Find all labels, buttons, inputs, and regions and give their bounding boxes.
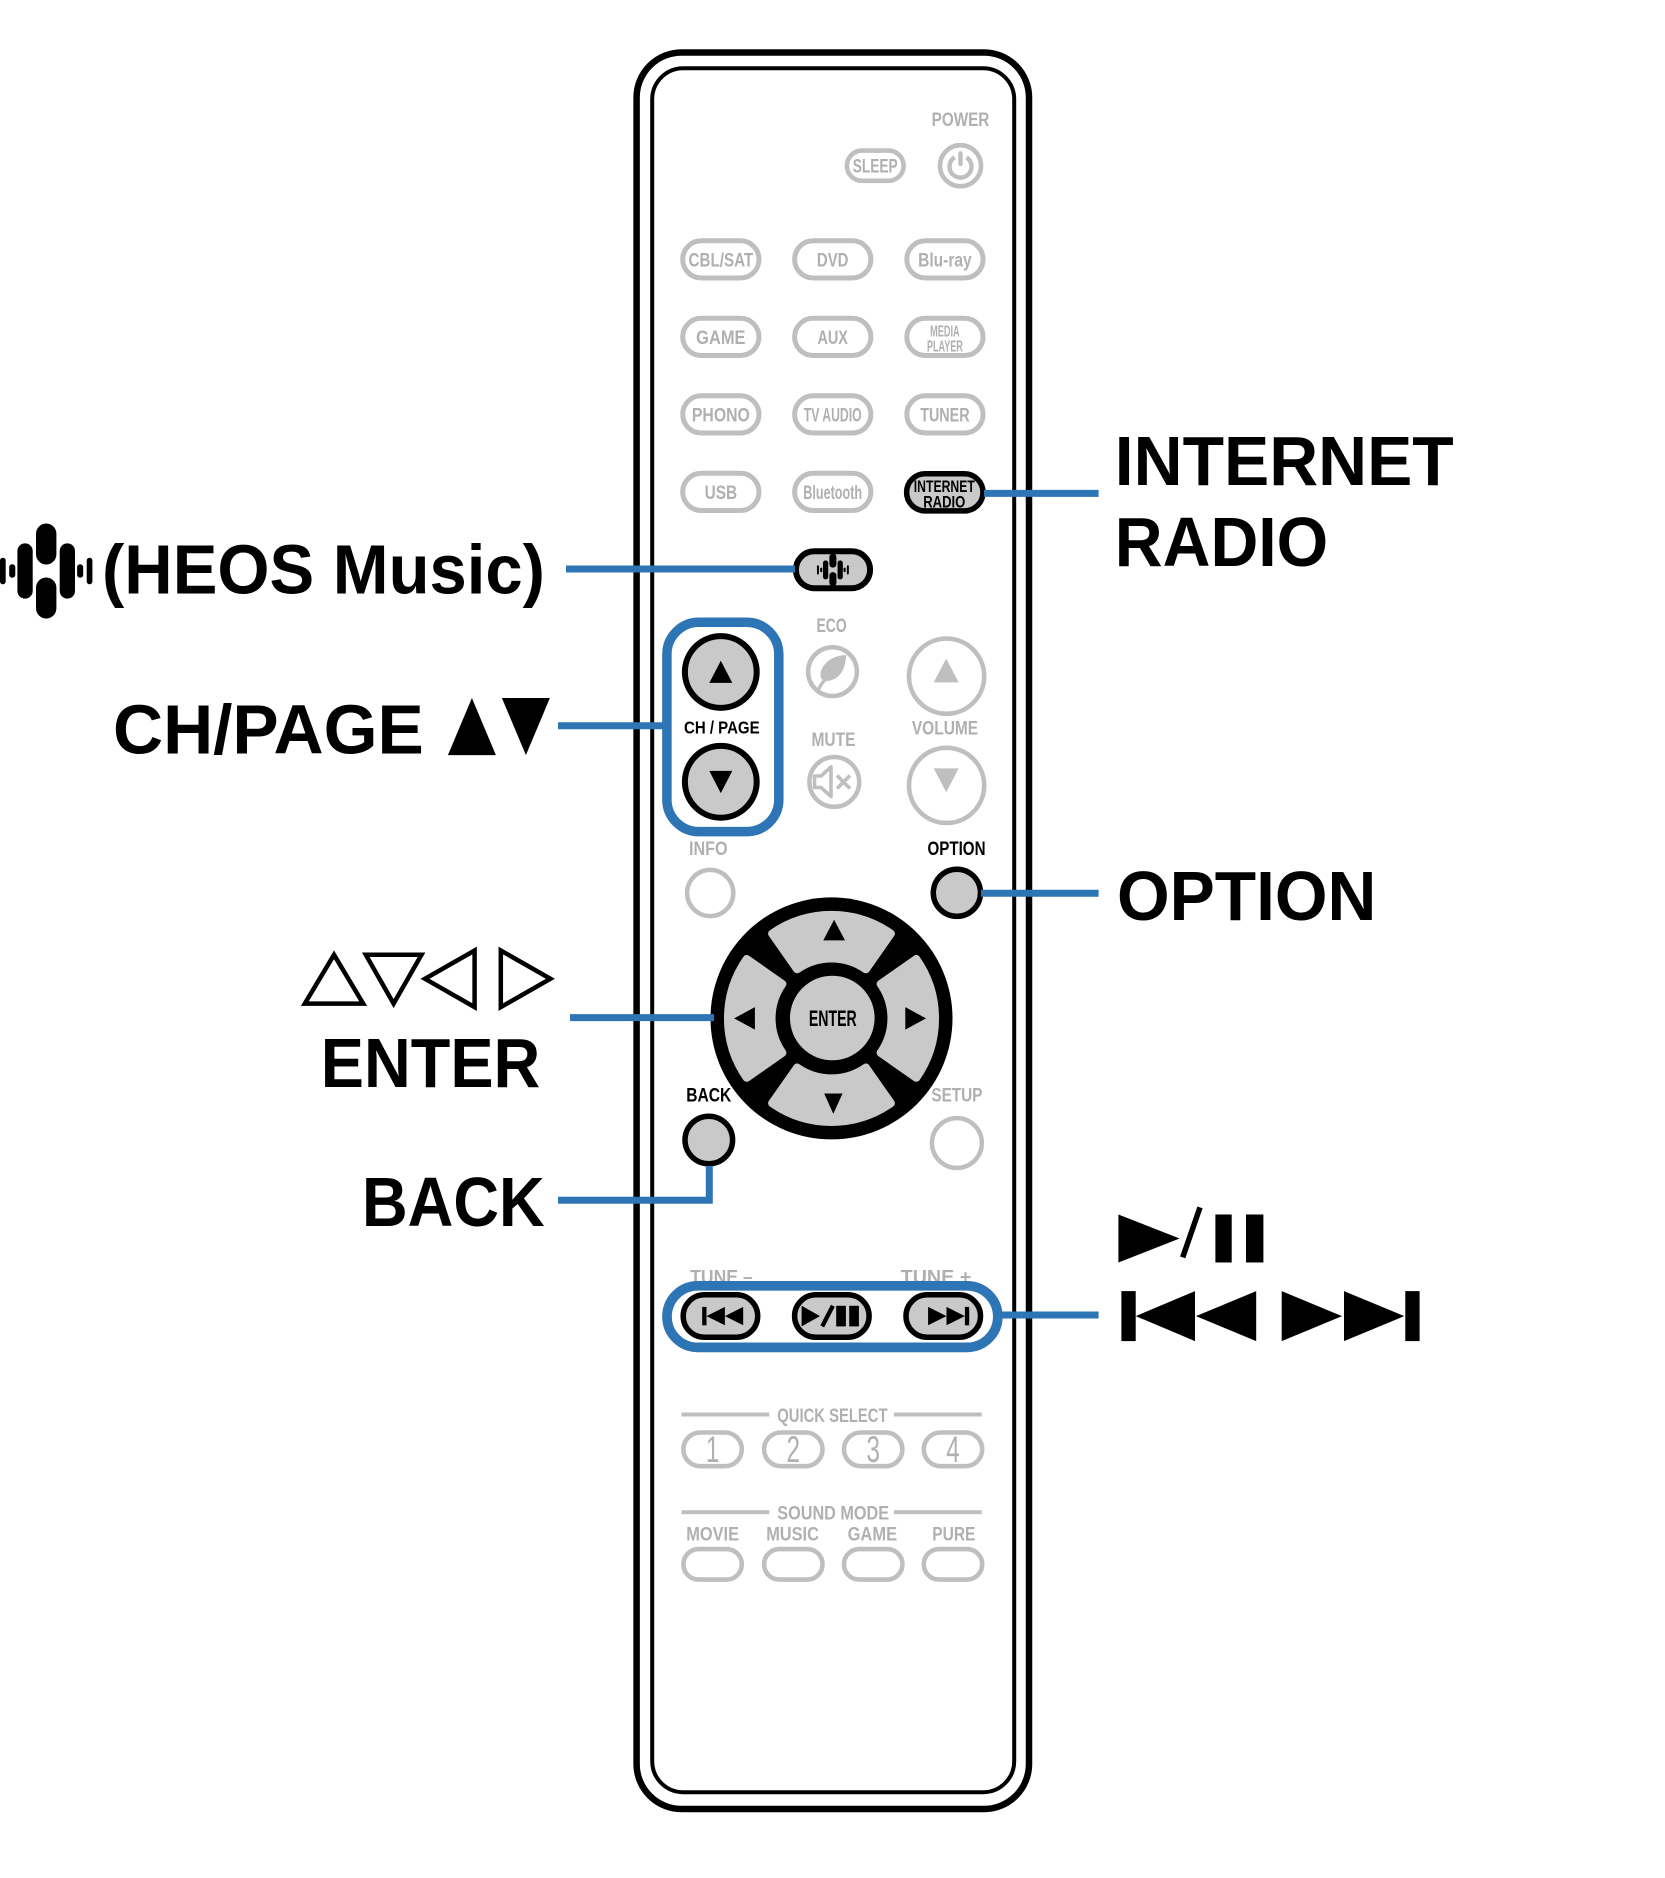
svg-text:USB: USB — [705, 482, 738, 504]
svg-text:SOUND MODE: SOUND MODE — [777, 1504, 889, 1525]
svg-text:RADIO: RADIO — [1115, 503, 1328, 581]
svg-text:CBL/SAT: CBL/SAT — [689, 250, 754, 272]
svg-text:GAME: GAME — [696, 327, 745, 349]
svg-text:OPTION: OPTION — [928, 839, 986, 860]
svg-text:1: 1 — [706, 1429, 720, 1470]
svg-text:4: 4 — [946, 1429, 960, 1470]
svg-text:OPTION: OPTION — [1117, 857, 1376, 935]
svg-text:GAME: GAME — [848, 1525, 898, 1546]
svg-text:AUX: AUX — [817, 327, 848, 349]
svg-text:MUSIC: MUSIC — [766, 1525, 819, 1546]
svg-text:2: 2 — [787, 1429, 801, 1470]
svg-text:MOVIE: MOVIE — [686, 1525, 739, 1546]
svg-text:Blu-ray: Blu-ray — [918, 250, 972, 272]
svg-text:TV AUDIO: TV AUDIO — [804, 405, 862, 427]
svg-text:(HEOS Music): (HEOS Music) — [102, 531, 545, 609]
svg-text:VOLUME: VOLUME — [912, 719, 978, 740]
svg-text:3: 3 — [866, 1429, 880, 1470]
svg-text:DVD: DVD — [817, 250, 849, 272]
svg-text:SETUP: SETUP — [931, 1086, 982, 1107]
svg-text:POWER: POWER — [932, 110, 990, 131]
svg-text:INFO: INFO — [689, 839, 728, 860]
svg-text:INTERNET: INTERNET — [1115, 422, 1454, 500]
svg-text:QUICK SELECT: QUICK SELECT — [777, 1406, 888, 1427]
svg-text:CH/PAGE: CH/PAGE — [113, 691, 424, 769]
svg-text:Bluetooth: Bluetooth — [803, 482, 862, 504]
svg-text:BACK: BACK — [686, 1086, 731, 1107]
svg-text:ENTER: ENTER — [809, 1006, 857, 1031]
svg-text:ENTER: ENTER — [321, 1024, 541, 1102]
svg-text:PLAYER: PLAYER — [927, 338, 963, 355]
svg-text:CH / PAGE: CH / PAGE — [684, 718, 760, 738]
svg-text:ECO: ECO — [817, 616, 847, 637]
svg-text:BACK: BACK — [362, 1163, 545, 1241]
svg-text:SLEEP: SLEEP — [853, 156, 898, 177]
svg-text:PHONO: PHONO — [692, 405, 750, 427]
svg-text:MUTE: MUTE — [812, 730, 856, 751]
svg-text:PURE: PURE — [932, 1525, 975, 1546]
svg-text:TUNER: TUNER — [920, 405, 969, 427]
svg-text:RADIO: RADIO — [923, 493, 965, 512]
